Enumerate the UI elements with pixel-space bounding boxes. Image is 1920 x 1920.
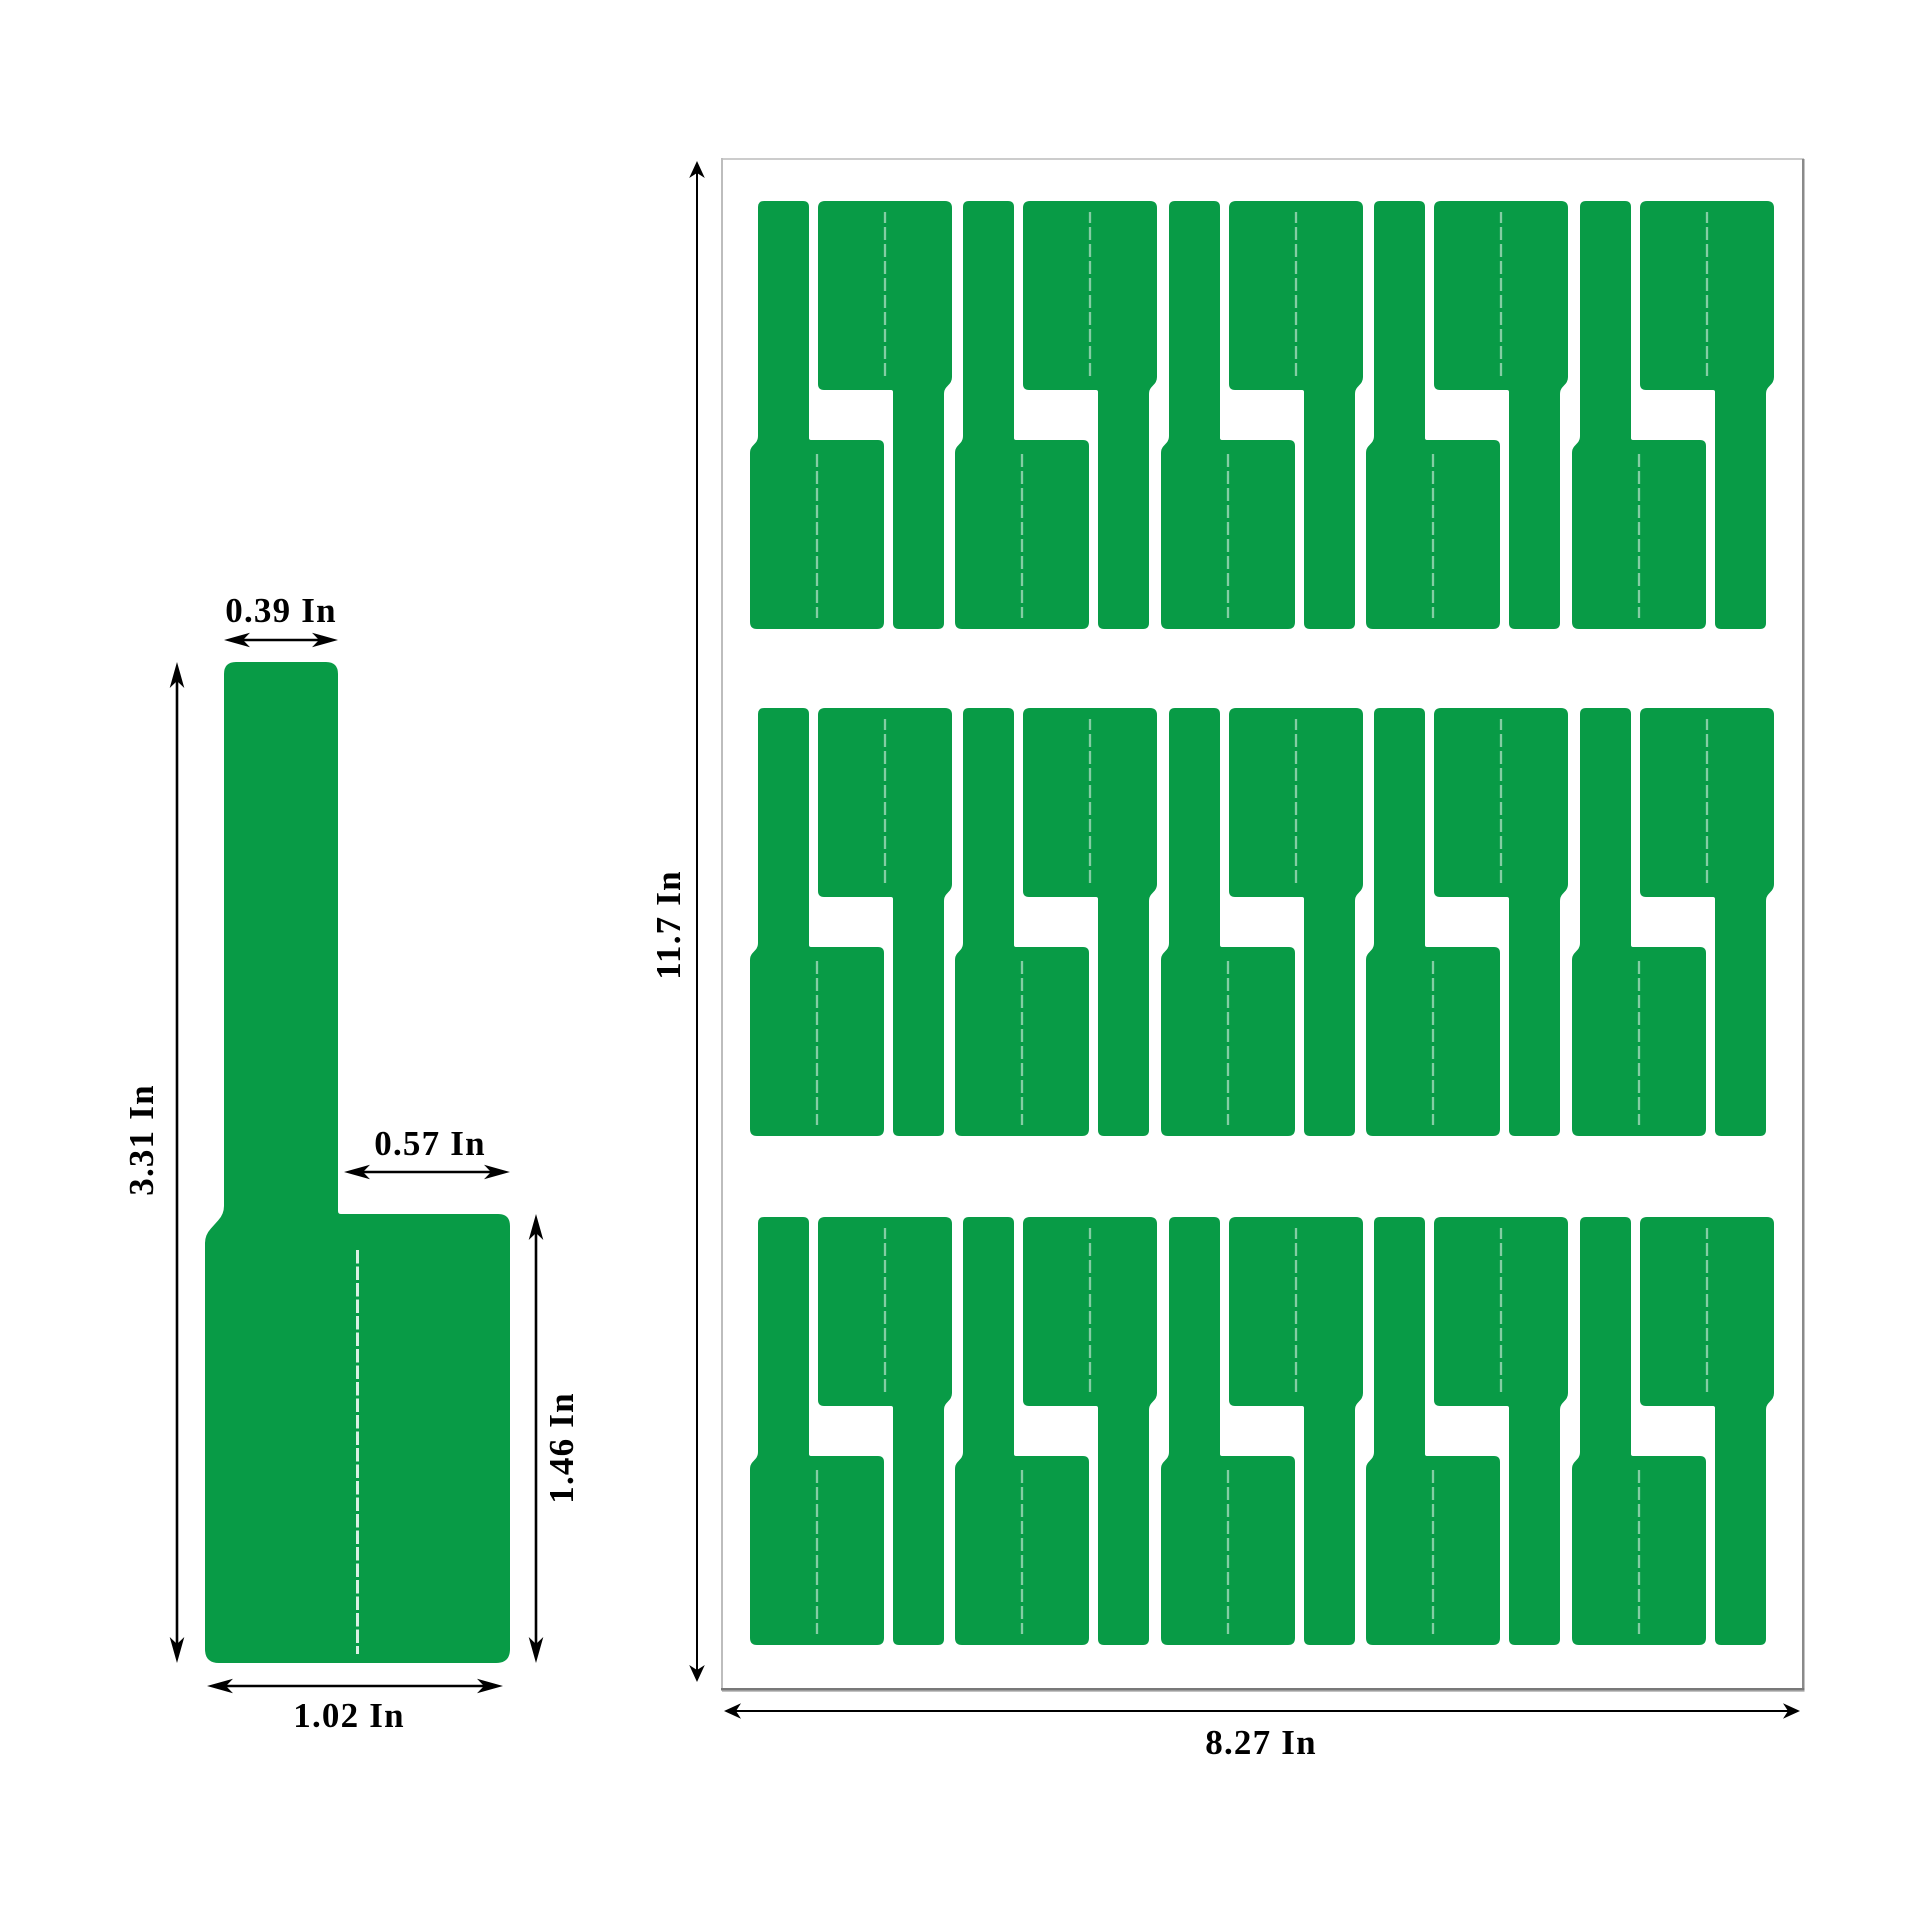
svg-text:1.46 In: 1.46 In	[542, 1392, 581, 1504]
svg-text:0.39 In: 0.39 In	[225, 591, 337, 630]
svg-text:0.57 In: 0.57 In	[374, 1124, 486, 1163]
svg-text:3.31 In: 3.31 In	[122, 1084, 161, 1196]
svg-text:1.02 In: 1.02 In	[293, 1696, 405, 1735]
svg-text:8.27 In: 8.27 In	[1205, 1723, 1317, 1762]
svg-text:11.7 In: 11.7 In	[649, 870, 688, 980]
